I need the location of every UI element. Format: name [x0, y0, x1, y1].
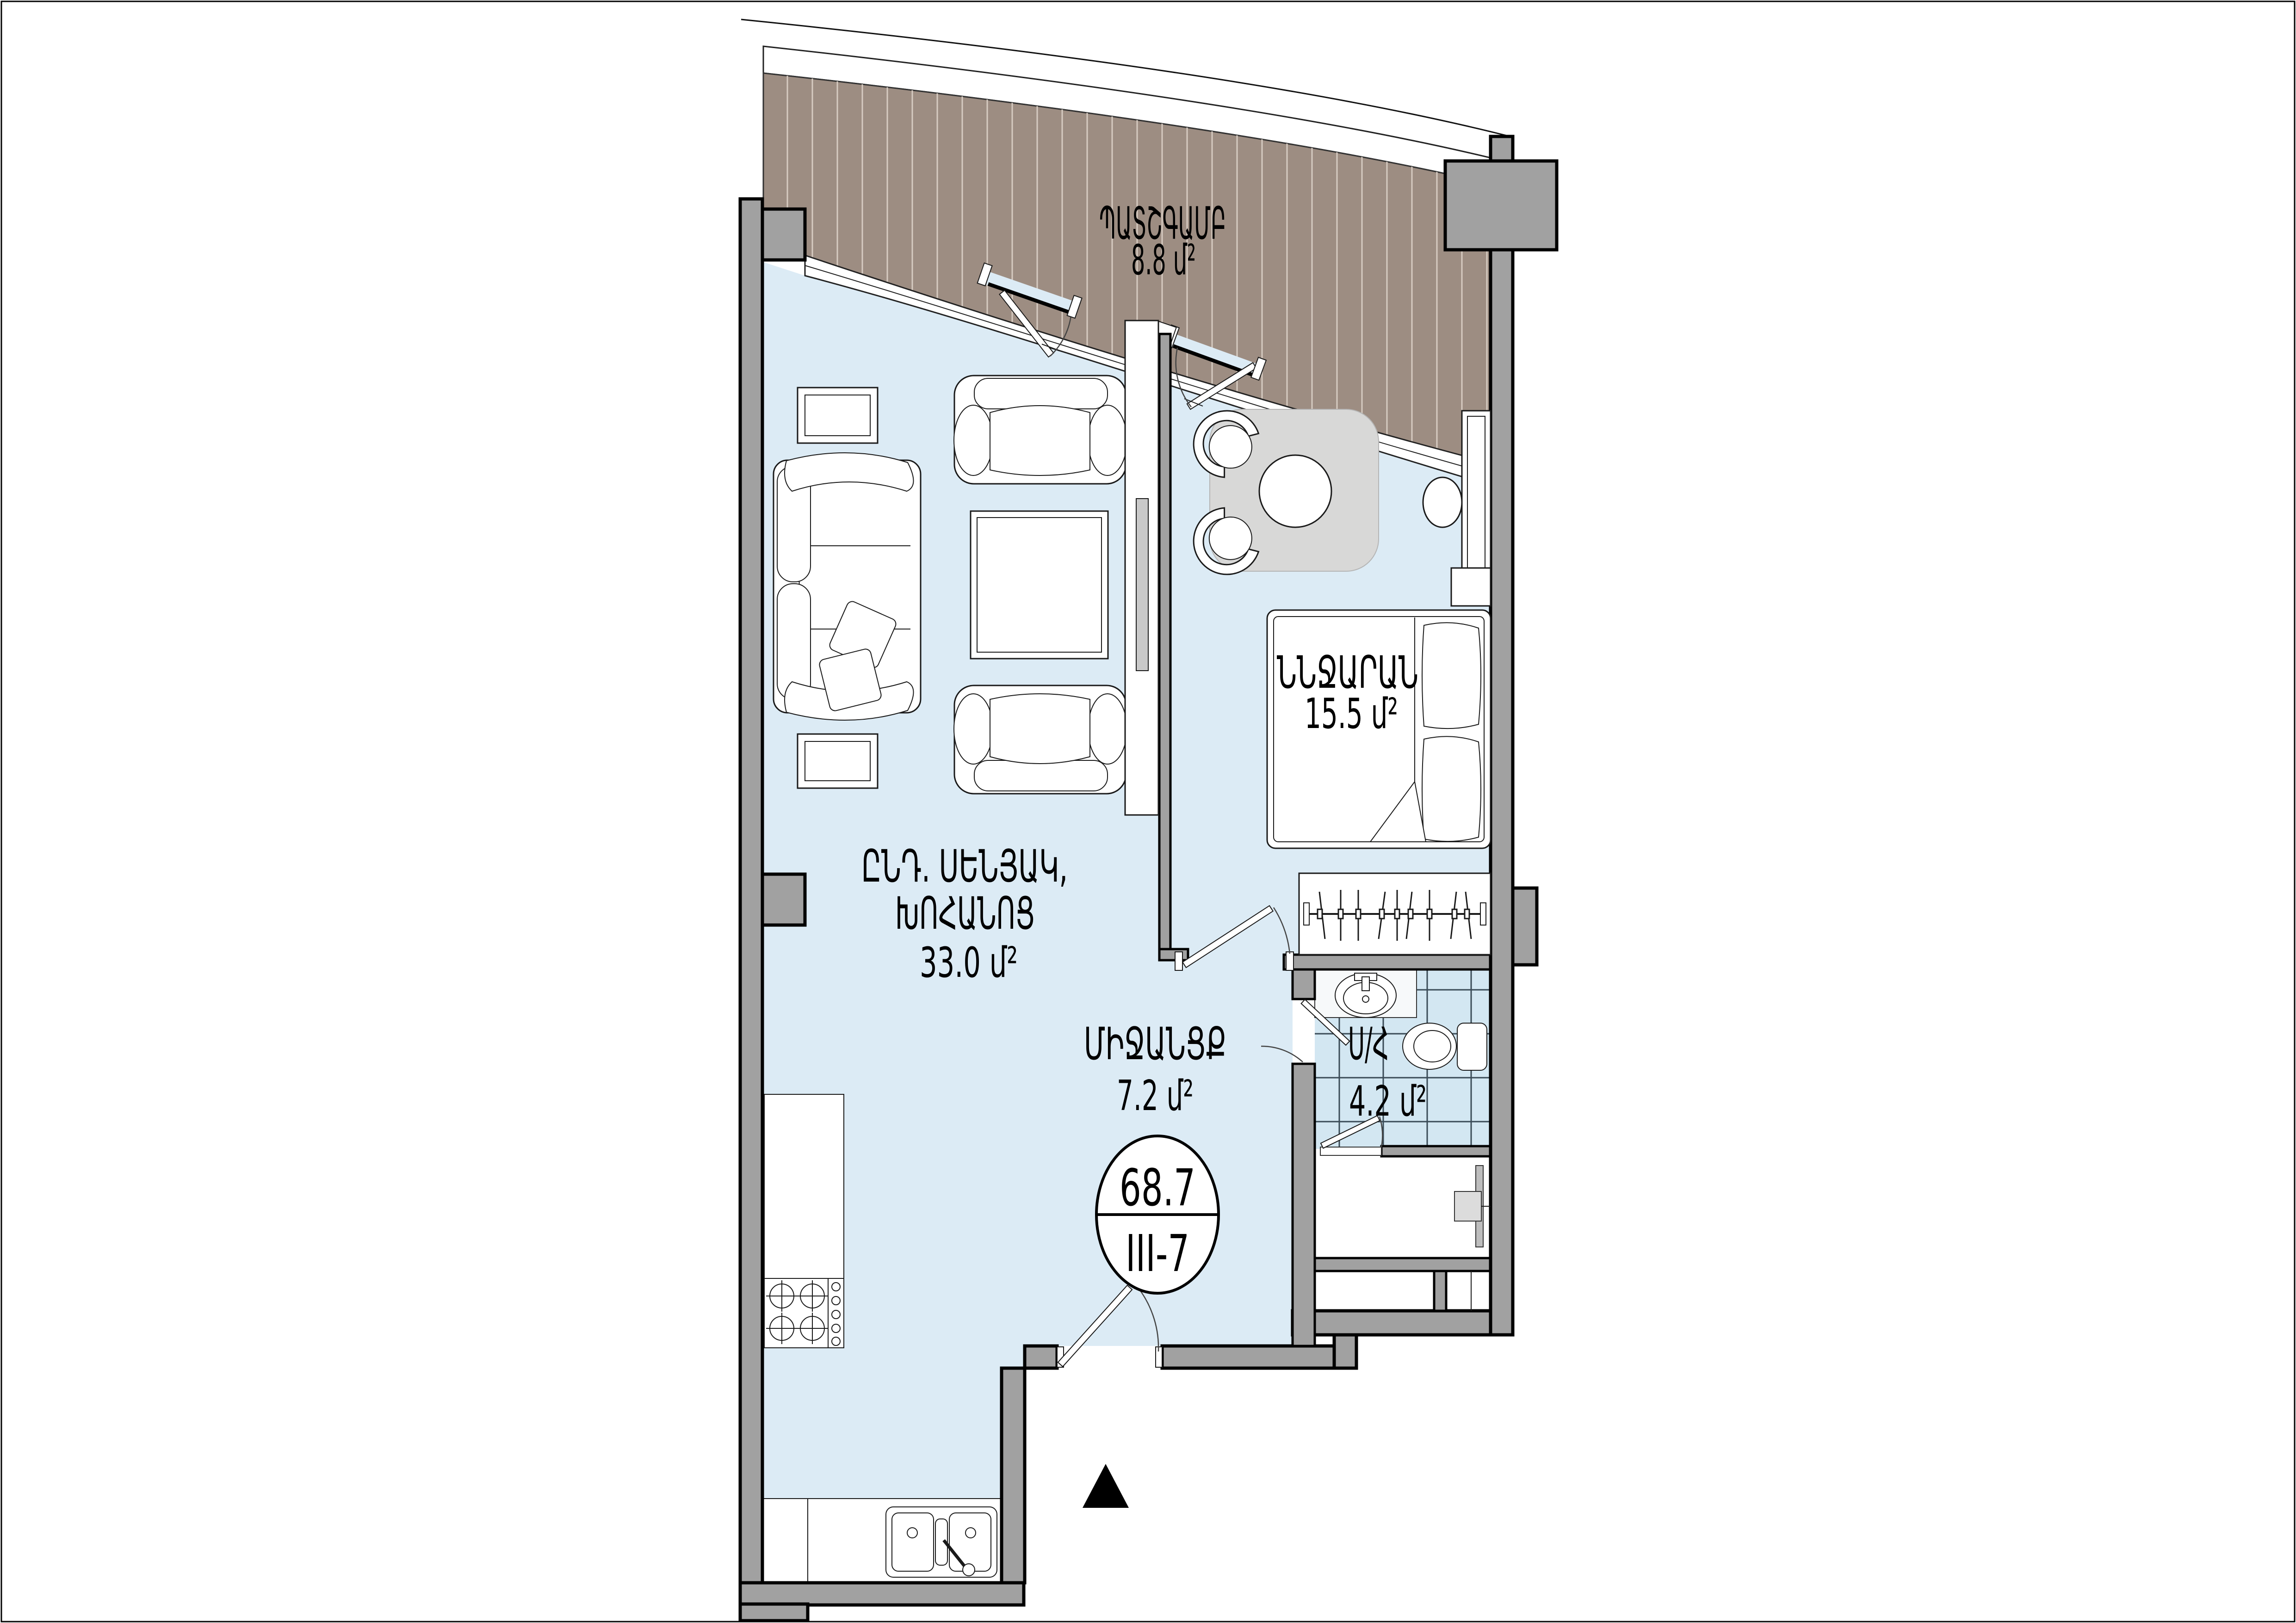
- wall-storage-divider: [1293, 1258, 1491, 1271]
- side-table-bottom: [798, 734, 878, 788]
- wall-pillar: [1445, 161, 1557, 250]
- kitchen-sink-icon: [886, 1507, 997, 1577]
- wardrobe-icon: [1299, 873, 1491, 955]
- bathroom-sink-icon: [1315, 969, 1417, 1018]
- wall-right: [1491, 250, 1513, 1335]
- hallway-name-label: ՄԻՋԱՆՑՔ: [1084, 1018, 1226, 1070]
- wall-bottom-right: [1293, 1311, 1513, 1335]
- balcony-area-label: 8.8 մ²: [1131, 236, 1196, 284]
- hallway-area-label: 7.2 մ²: [1117, 1072, 1194, 1120]
- wall-small-room-divider: [1434, 1271, 1446, 1311]
- bedroom-area-label: 15.5 մ²: [1305, 690, 1398, 738]
- bathroom-name-label: Ս/Հ: [1348, 1018, 1389, 1070]
- bathroom-area-label: 4.2 մ²: [1349, 1077, 1427, 1126]
- wall-entry-side: [1002, 1368, 1025, 1583]
- armchair-bottom-icon: [954, 685, 1127, 794]
- wall-pier-right: [1513, 888, 1537, 965]
- wall-bath-left-lower: [1293, 1064, 1315, 1346]
- wall-bath-left-upper: [1293, 969, 1315, 999]
- unit-stamp: 68.7 III-7: [1096, 1136, 1219, 1293]
- toilet-icon: [1403, 1023, 1487, 1070]
- floor-plan-drawing: ՊԱՏՇԳԱՄԲ 8.8 մ² ԸՆԴ. ՍԵՆՅԱԿ, ԽՈՀԱՆՈՑ 33.…: [0, 0, 2296, 1623]
- round-table: [1259, 455, 1331, 527]
- wall-pillar-stem: [1491, 136, 1513, 161]
- wall-bottom-foot: [740, 1604, 808, 1621]
- tv-icon: [1136, 499, 1148, 671]
- wall-partition: [1159, 334, 1170, 960]
- wall-pier-left: [762, 874, 805, 925]
- wall-partition-foot: [1159, 949, 1188, 960]
- wall-bottom-kitchen: [740, 1583, 1024, 1605]
- nightstand: [1451, 568, 1491, 606]
- stove-icon: [764, 1278, 844, 1348]
- stool: [1423, 477, 1462, 527]
- utility-box-icon: [1454, 1191, 1481, 1221]
- living-name-label-line2: ԽՈՀԱՆՈՑ: [895, 888, 1035, 939]
- stamp-unit-code: III-7: [1126, 1224, 1189, 1283]
- stamp-total-area: 68.7: [1120, 1158, 1195, 1217]
- side-table-top: [798, 388, 878, 443]
- wall-hall-bath-separator: [1284, 955, 1491, 969]
- wall-bath-lower: [1381, 1146, 1491, 1156]
- armchair-top-icon: [954, 376, 1127, 484]
- wall-left: [740, 199, 762, 1605]
- living-name-label-line1: ԸՆԴ. ՍԵՆՅԱԿ,: [861, 840, 1068, 892]
- wall-pier-top-left: [762, 209, 805, 260]
- tv-console: [1125, 321, 1158, 815]
- coffee-table: [971, 511, 1108, 659]
- sofa-icon: [774, 453, 921, 720]
- living-area-label: 33.0 մ²: [920, 938, 1018, 987]
- desk: [1462, 411, 1491, 592]
- wall-entry-jamb-left: [1025, 1346, 1057, 1368]
- wall-entry-right: [1162, 1346, 1356, 1368]
- floor-plan-sheet: ՊԱՏՇԳԱՄԲ 8.8 մ² ԸՆԴ. ՍԵՆՅԱԿ, ԽՈՀԱՆՈՑ 33.…: [0, 0, 2296, 1623]
